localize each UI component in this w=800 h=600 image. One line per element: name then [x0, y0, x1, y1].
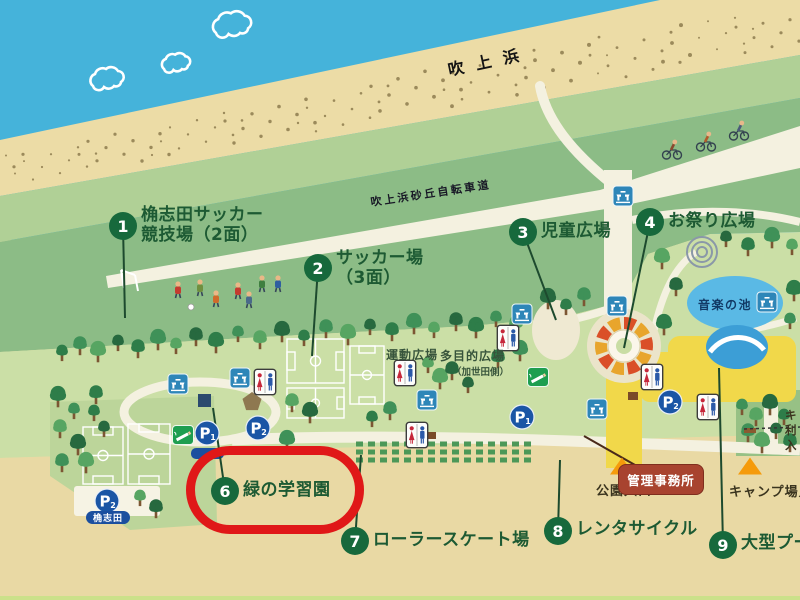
spot-number-badge-1: 1 — [109, 212, 137, 240]
svg-text:1: 1 — [525, 417, 531, 426]
signpost-icon — [428, 432, 436, 439]
entrance-triangle-icon — [737, 457, 763, 476]
parking-icon: P1 — [509, 404, 535, 430]
toilet-icon — [406, 422, 429, 449]
toilet-icon — [697, 394, 720, 421]
camp-user-entrance-label: キ 利 入 — [785, 408, 797, 453]
fountain-icon — [512, 304, 533, 325]
spot-label-3: 児童広場 — [541, 221, 611, 241]
playground-area — [532, 300, 580, 360]
music-pond-label: 音楽の池 — [698, 296, 752, 313]
spot-number-badge-7: 7 — [341, 527, 369, 555]
toilet-icon — [641, 364, 664, 391]
fountain-icon — [587, 399, 608, 420]
svg-text:2: 2 — [673, 402, 679, 411]
spot-label-2: サッカー場 （3面） — [336, 248, 424, 288]
spot-label-6: 緑の学習園 — [243, 480, 331, 500]
svg-text:2: 2 — [110, 501, 116, 510]
spot-label-1: 桷志田サッカー 競技場（2面） — [141, 205, 264, 245]
fountain-icon — [417, 390, 438, 411]
fountain-icon — [168, 374, 189, 395]
map-terrain — [0, 0, 800, 600]
svg-text:P: P — [200, 425, 211, 443]
parking-icon: P2 — [245, 415, 271, 441]
svg-text:1: 1 — [210, 433, 216, 442]
smoking-area-icon — [172, 425, 194, 445]
hedge-rows — [356, 444, 532, 460]
svg-text:2: 2 — [261, 428, 267, 437]
camp-entrance-label: キャンプ場入口 — [729, 481, 800, 500]
parking-icon: P2 — [657, 389, 683, 415]
svg-text:P: P — [515, 409, 526, 427]
spot-label-8: レンタサイクル — [576, 519, 698, 539]
toilet-icon — [394, 360, 417, 387]
svg-text:P: P — [100, 493, 111, 511]
spot-number-badge-3: 3 — [509, 218, 537, 246]
toilet-icon — [254, 369, 277, 396]
fountain-icon — [230, 368, 251, 389]
park-map: P1P2P2P1P2 1桷志田サッカー 競技場（2面）2サッカー場 （3面）3児… — [0, 0, 800, 600]
signpost-icon — [628, 392, 638, 400]
spot-label-7: ローラースケート場 — [373, 530, 530, 550]
building-icon — [198, 394, 211, 407]
spot-label-9: 大型プール — [741, 533, 800, 553]
svg-text:P: P — [663, 394, 674, 412]
parking-icon: P1 — [194, 420, 220, 446]
bottom-strip — [0, 596, 800, 600]
fountain-icon — [613, 186, 634, 207]
multipurpose-note-label: （加世田側） — [452, 364, 509, 378]
spot-number-badge-8: 8 — [544, 517, 572, 545]
soccer-ball-icon — [188, 304, 194, 310]
spot-number-badge-6: 6 — [211, 477, 239, 505]
multipurpose-plaza-label: 多目的広場 — [440, 347, 505, 364]
fountain-icon — [757, 292, 778, 313]
spot-number-badge-4: 4 — [636, 208, 664, 236]
svg-text:P: P — [251, 420, 262, 438]
spot-number-badge-2: 2 — [304, 254, 332, 282]
spot-number-badge-9: 9 — [709, 531, 737, 559]
fountain-icon — [607, 296, 628, 317]
sports-plaza-label: 運動広場 — [386, 346, 438, 363]
admin-office-label: 管理事務所 — [618, 464, 704, 495]
parking-name-label: 桷志田 — [86, 511, 130, 524]
smoking-area-icon — [527, 367, 549, 387]
spot-label-4: お祭り広場 — [668, 211, 756, 231]
